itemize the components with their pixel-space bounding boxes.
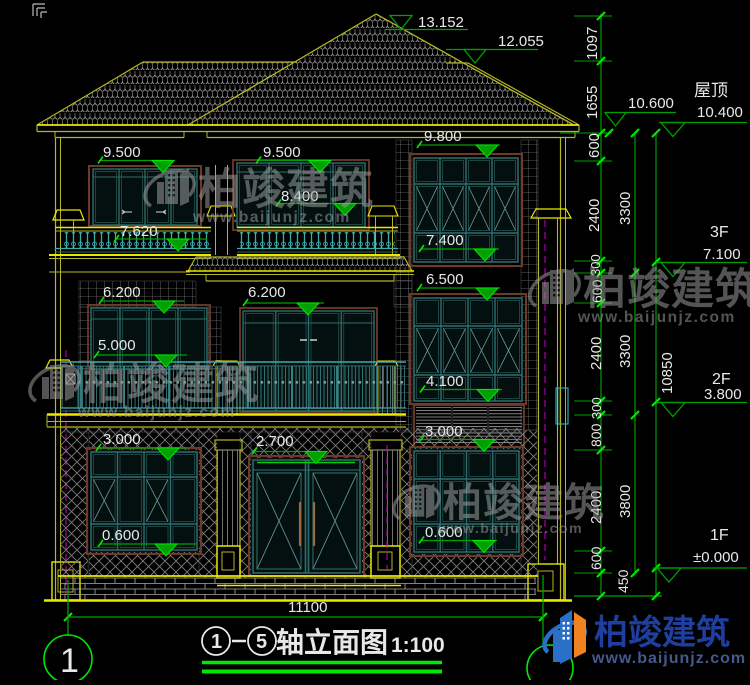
svg-text:1097: 1097: [584, 27, 601, 60]
svg-text:10.400: 10.400: [697, 104, 743, 121]
svg-text:3300: 3300: [617, 192, 634, 225]
svg-text:1: 1: [211, 631, 222, 653]
svg-text:9.500: 9.500: [263, 144, 301, 161]
svg-text:2400: 2400: [586, 199, 603, 232]
svg-text:5: 5: [256, 631, 267, 653]
svg-text:7.100: 7.100: [703, 246, 741, 263]
svg-text:6.200: 6.200: [103, 284, 141, 301]
svg-text:www.baijunjz.com: www.baijunjz.com: [591, 650, 746, 667]
svg-text:轴立面图: 轴立面图: [276, 626, 388, 658]
svg-text:9.800: 9.800: [424, 128, 462, 145]
svg-text:800: 800: [588, 423, 604, 447]
svg-text:6.200: 6.200: [248, 284, 286, 301]
svg-text:1F: 1F: [710, 527, 729, 544]
svg-text:7.620: 7.620: [120, 223, 158, 240]
svg-text:6.500: 6.500: [426, 271, 464, 288]
svg-text:4.100: 4.100: [426, 373, 464, 390]
svg-text:3.800: 3.800: [704, 386, 742, 403]
svg-text:600: 600: [586, 133, 603, 158]
svg-text:±0.000: ±0.000: [693, 549, 739, 566]
svg-text:3800: 3800: [617, 485, 634, 518]
svg-text:12.055: 12.055: [498, 33, 544, 50]
svg-text:300: 300: [589, 397, 604, 419]
svg-text:600: 600: [588, 546, 604, 570]
svg-text:3.000: 3.000: [103, 431, 141, 448]
svg-text:3F: 3F: [710, 224, 729, 241]
svg-text:1: 1: [60, 642, 79, 680]
svg-text:0.600: 0.600: [102, 527, 140, 544]
svg-text:10.600: 10.600: [628, 95, 674, 112]
svg-text:7.400: 7.400: [426, 232, 464, 249]
svg-text:1:100: 1:100: [391, 634, 445, 657]
svg-text:2.700: 2.700: [256, 433, 294, 450]
svg-text:450: 450: [615, 569, 631, 593]
svg-text:1655: 1655: [584, 86, 601, 119]
svg-text:2400: 2400: [588, 337, 605, 370]
svg-text:9.500: 9.500: [103, 144, 141, 161]
svg-text:3300: 3300: [617, 335, 634, 368]
svg-text:5.000: 5.000: [98, 337, 136, 354]
svg-text:10850: 10850: [659, 352, 676, 394]
svg-text:柏竣建筑: 柏竣建筑: [594, 613, 730, 652]
svg-text:屋顶: 屋顶: [694, 81, 728, 100]
svg-text:3.000: 3.000: [425, 423, 463, 440]
svg-text:13.152: 13.152: [418, 14, 464, 31]
svg-text:11100: 11100: [288, 599, 328, 616]
